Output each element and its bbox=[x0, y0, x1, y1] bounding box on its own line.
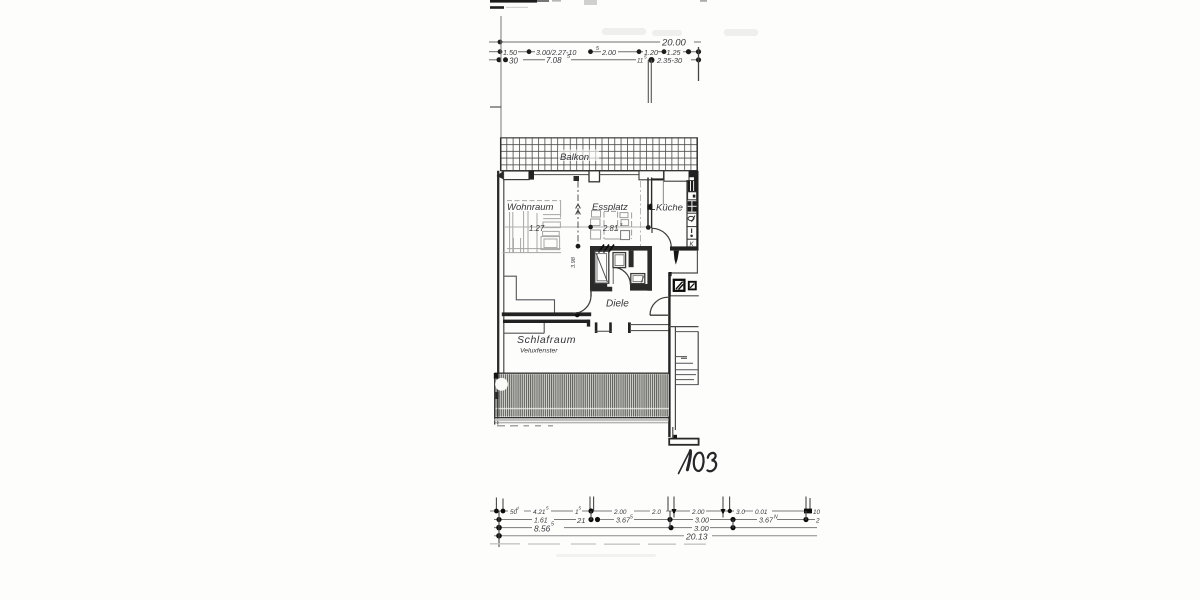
svg-text:5: 5 bbox=[596, 46, 600, 52]
svg-text:8.56: 8.56 bbox=[534, 523, 551, 533]
svg-text:s: s bbox=[620, 222, 623, 228]
svg-text:30: 30 bbox=[509, 56, 518, 65]
svg-text:21: 21 bbox=[576, 516, 585, 525]
svg-text:Veluxfenster: Veluxfenster bbox=[520, 348, 558, 355]
svg-text:5: 5 bbox=[630, 515, 633, 521]
svg-text:5: 5 bbox=[579, 506, 582, 511]
svg-text:2.0: 2.0 bbox=[651, 509, 661, 516]
svg-text:Balkon: Balkon bbox=[560, 152, 589, 163]
svg-text:10: 10 bbox=[813, 509, 821, 516]
svg-text:d: d bbox=[516, 506, 519, 511]
svg-text:1.27: 1.27 bbox=[529, 224, 545, 233]
svg-text:Diele: Diele bbox=[606, 299, 629, 310]
svg-text:5: 5 bbox=[644, 55, 647, 61]
svg-text:Schlafraum: Schlafraum bbox=[517, 334, 576, 346]
svg-text:2.00: 2.00 bbox=[601, 48, 616, 57]
svg-text:5: 5 bbox=[546, 506, 549, 511]
svg-text:Essplatz: Essplatz bbox=[592, 202, 628, 213]
svg-text:N: N bbox=[774, 515, 778, 521]
svg-text:2.81: 2.81 bbox=[602, 224, 618, 233]
svg-text:11: 11 bbox=[637, 59, 643, 65]
svg-text:20.00: 20.00 bbox=[661, 38, 686, 49]
svg-text:Wohnraum: Wohnraum bbox=[507, 202, 554, 213]
svg-text:7.08: 7.08 bbox=[546, 56, 562, 65]
svg-text:4.21: 4.21 bbox=[533, 509, 546, 516]
svg-text:2: 2 bbox=[815, 518, 820, 525]
svg-text:3.98: 3.98 bbox=[571, 256, 577, 268]
svg-text:3.67: 3.67 bbox=[616, 516, 631, 525]
svg-text:5: 5 bbox=[551, 522, 555, 528]
svg-text:3.0: 3.0 bbox=[736, 509, 745, 516]
svg-text:20.13: 20.13 bbox=[685, 531, 708, 541]
svg-text:Küche: Küche bbox=[656, 203, 683, 214]
svg-text:3.67: 3.67 bbox=[759, 516, 774, 525]
svg-text:2.35-30: 2.35-30 bbox=[656, 56, 683, 65]
